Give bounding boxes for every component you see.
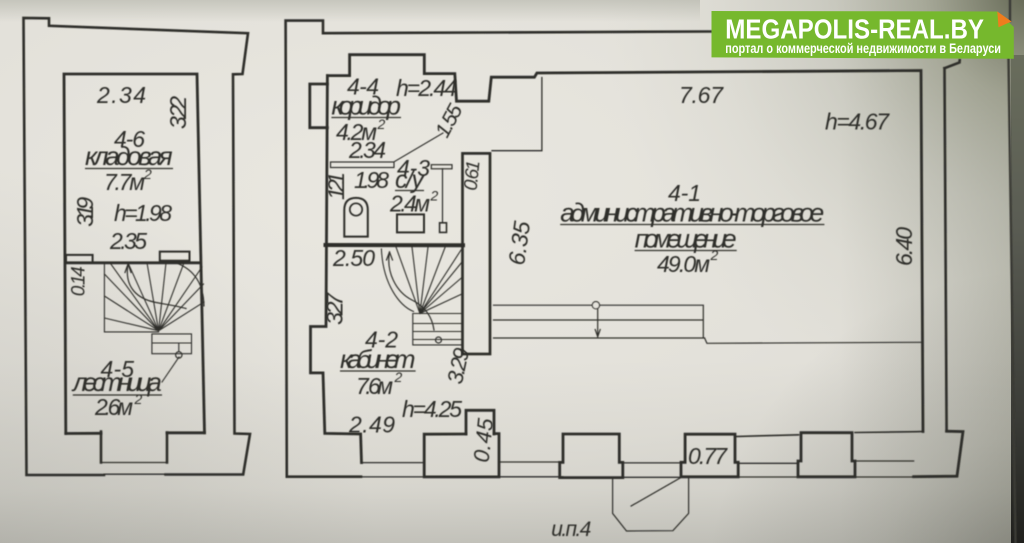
svg-text:1.98: 1.98 [354, 167, 389, 193]
svg-text:1.21: 1.21 [323, 172, 349, 200]
svg-text:3.19: 3.19 [72, 197, 98, 227]
svg-text:h=4.25: h=4.25 [402, 396, 462, 422]
svg-text:3.22: 3.22 [165, 96, 191, 129]
svg-text:портал о коммерческой недвижим: портал о коммерческой недвижимости в Бел… [725, 41, 1001, 57]
svg-text:7.67: 7.67 [679, 82, 724, 108]
svg-text:h=2.44: h=2.44 [396, 75, 457, 101]
svg-text:2: 2 [430, 188, 439, 204]
svg-text:7.7м: 7.7м [104, 169, 145, 195]
svg-text:0.14: 0.14 [69, 266, 90, 296]
svg-text:2: 2 [710, 247, 719, 263]
svg-text:помещение: помещение [635, 224, 737, 254]
svg-text:2.50: 2.50 [332, 245, 375, 271]
svg-text:0.77: 0.77 [688, 443, 728, 469]
svg-text:2: 2 [134, 391, 143, 407]
svg-text:2.49: 2.49 [348, 412, 395, 438]
svg-text:2.34: 2.34 [96, 82, 146, 108]
svg-text:6.40: 6.40 [891, 227, 917, 266]
svg-text:кладовая: кладовая [85, 141, 173, 171]
svg-text:3.27: 3.27 [321, 292, 347, 325]
svg-text:0.45: 0.45 [469, 416, 499, 463]
svg-text:2.4м: 2.4м [389, 191, 430, 217]
svg-text:7.6м: 7.6м [356, 373, 393, 399]
svg-text:2.34: 2.34 [348, 137, 386, 163]
svg-text:коридор: коридор [331, 90, 401, 120]
svg-text:2: 2 [377, 116, 386, 132]
svg-text:2.6м: 2.6м [94, 394, 133, 420]
svg-text:и.п.4: и.п.4 [551, 518, 591, 541]
svg-text:h=4.67: h=4.67 [825, 109, 890, 135]
svg-text:49.0м: 49.0м [657, 251, 710, 277]
svg-text:2.35: 2.35 [109, 228, 147, 254]
svg-text:0.61: 0.61 [461, 159, 485, 191]
svg-text:лестница: лестница [71, 367, 162, 397]
svg-text:h=1.98: h=1.98 [114, 200, 172, 226]
svg-text:кабинет: кабинет [340, 344, 416, 374]
